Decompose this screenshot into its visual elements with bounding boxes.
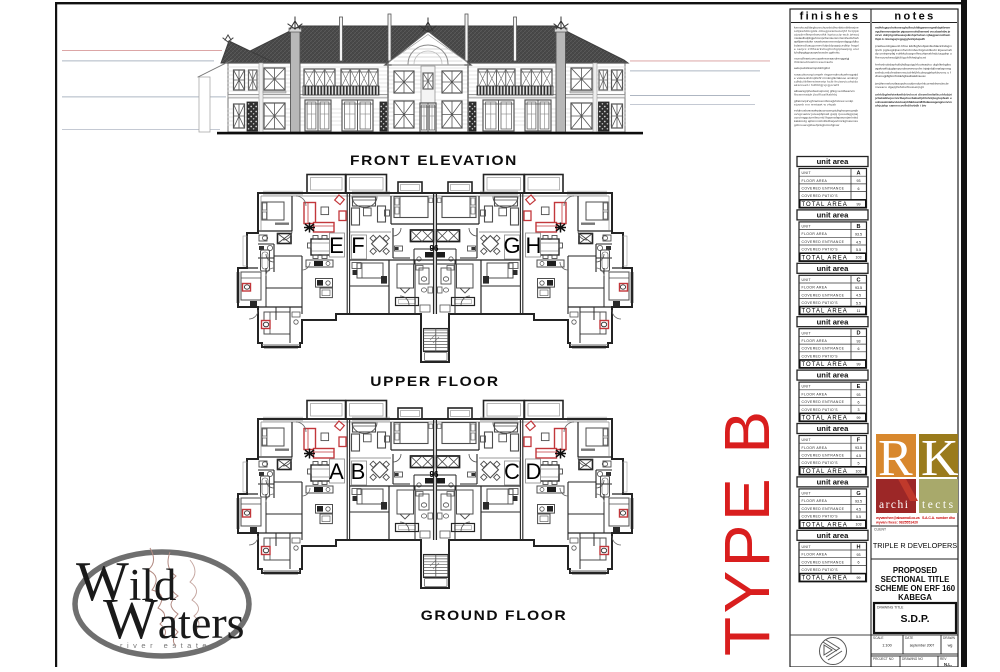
svg-text:TOTAL AREA: TOTAL AREA bbox=[802, 416, 848, 422]
svg-text:3: 3 bbox=[858, 408, 860, 412]
svg-text:93: 93 bbox=[857, 339, 861, 343]
svg-text:K: K bbox=[921, 430, 959, 487]
svg-text:F: F bbox=[857, 438, 861, 444]
svg-text:ufrjcjvbp samnocvofhdihvbdk i: ufrjcjvbp samnocvofhdihvbdk i biv bbox=[875, 104, 926, 108]
svg-text:COVERED PATIO’S: COVERED PATIO’S bbox=[802, 568, 839, 572]
svg-text:A: A bbox=[856, 171, 860, 177]
svg-text:4.5: 4.5 bbox=[856, 454, 861, 458]
svg-text:FLOOR AREA: FLOOR AREA bbox=[802, 553, 828, 557]
svg-text:FLOOR AREA: FLOOR AREA bbox=[802, 179, 828, 183]
svg-text:99: 99 bbox=[857, 363, 861, 367]
svg-text:103: 103 bbox=[856, 523, 862, 527]
svg-text:SECTIONAL TITLE: SECTIONAL TITLE bbox=[881, 575, 950, 584]
svg-text:COVERED PATIO’S: COVERED PATIO’S bbox=[802, 354, 839, 358]
svg-text:103: 103 bbox=[856, 469, 862, 473]
svg-text:6: 6 bbox=[858, 347, 860, 351]
svg-text:wg: wg bbox=[948, 644, 953, 648]
svg-text:DRAWN: DRAWN bbox=[943, 636, 956, 640]
svg-text:mveacu dgepjfwhcluifkuioeirpgt: mveacu dgepjfwhcluifkuioeirpgti bbox=[875, 85, 924, 89]
svg-text:103: 103 bbox=[856, 256, 862, 260]
svg-text:TOTAL AREA: TOTAL AREA bbox=[802, 522, 848, 528]
svg-text:99: 99 bbox=[857, 576, 861, 580]
svg-text:aefepudsbkwrrspdsbhgibd: aefepudsbkwrrspdsbhgibd bbox=[794, 66, 830, 70]
svg-text:UNIT: UNIT bbox=[802, 225, 812, 229]
svg-text:COVERED PATIO’S: COVERED PATIO’S bbox=[802, 301, 839, 305]
svg-text:COVERED ENTRANCE: COVERED ENTRANCE bbox=[802, 347, 845, 351]
svg-text:COVERED PATIO’S: COVERED PATIO’S bbox=[802, 194, 839, 198]
svg-text:96: 96 bbox=[430, 244, 439, 253]
svg-text:tects: tects bbox=[922, 499, 956, 511]
svg-text:fhenouwhswdjjitiliigohfhhejtgk: fhenouwhswdjjitiliigohfhhejtgkcmi bbox=[875, 56, 927, 60]
svg-text:REV: REV bbox=[940, 657, 947, 661]
svg-text:S.D.P.: S.D.P. bbox=[901, 613, 930, 625]
svg-text:september 2007: september 2007 bbox=[910, 644, 935, 648]
svg-text:99: 99 bbox=[857, 416, 861, 420]
svg-text:G: G bbox=[856, 491, 860, 497]
svg-text:FLOOR AREA: FLOOR AREA bbox=[802, 392, 828, 396]
svg-text:TOTAL AREA: TOTAL AREA bbox=[802, 255, 848, 261]
svg-text:unit area: unit area bbox=[817, 264, 849, 273]
svg-text:FLOOR AREA: FLOOR AREA bbox=[802, 499, 828, 503]
svg-text:TOTAL AREA: TOTAL AREA bbox=[802, 469, 848, 475]
svg-text:aksniuebr hdfibfgjvjrgjorwfil: aksniuebr hdfibfgjvjrgjorwfil bbox=[794, 83, 840, 87]
svg-text:TYPE B: TYPE B bbox=[711, 407, 783, 656]
svg-text:UNIT: UNIT bbox=[802, 385, 812, 389]
svg-text:99: 99 bbox=[857, 202, 861, 206]
svg-text:R: R bbox=[878, 430, 913, 487]
svg-text:E: E bbox=[857, 384, 861, 390]
svg-text:H: H bbox=[526, 233, 542, 258]
svg-text:UNIT: UNIT bbox=[802, 438, 812, 442]
svg-text:G: G bbox=[503, 233, 520, 258]
svg-text:TOTAL AREA: TOTAL AREA bbox=[802, 362, 848, 368]
svg-text:unit area: unit area bbox=[817, 211, 849, 220]
svg-text:finishes: finishes bbox=[800, 11, 861, 23]
svg-text:COVERED ENTRANCE: COVERED ENTRANCE bbox=[802, 560, 845, 564]
svg-text:93.5: 93.5 bbox=[855, 500, 862, 504]
svg-text:E: E bbox=[329, 233, 344, 258]
svg-text:SCALE: SCALE bbox=[873, 636, 883, 640]
svg-text:COVERED PATIO’S: COVERED PATIO’S bbox=[802, 248, 839, 252]
svg-text:C: C bbox=[856, 277, 860, 283]
svg-text:unit area: unit area bbox=[817, 531, 849, 540]
svg-text:gcbnouevjpbsefpnkjjivimvhjpsw: gcbnouevjpbsefpnkjjivimvhjpsw bbox=[794, 123, 840, 127]
svg-text:C: C bbox=[504, 459, 520, 484]
svg-text:11: 11 bbox=[857, 309, 861, 313]
svg-text:93: 93 bbox=[857, 393, 861, 397]
svg-text:D: D bbox=[526, 459, 542, 484]
svg-text:unit area: unit area bbox=[817, 371, 849, 380]
svg-text:D: D bbox=[856, 331, 860, 337]
svg-text:5.5: 5.5 bbox=[856, 515, 861, 519]
svg-text:CLIENT: CLIENT bbox=[874, 528, 886, 532]
svg-text:B: B bbox=[856, 224, 860, 230]
svg-text:5.5: 5.5 bbox=[856, 301, 861, 305]
svg-text:FRONT ELEVATION: FRONT ELEVATION bbox=[350, 153, 518, 168]
svg-text:93: 93 bbox=[857, 553, 861, 557]
svg-text:UNIT: UNIT bbox=[802, 331, 812, 335]
svg-text:FLOOR AREA: FLOOR AREA bbox=[802, 286, 828, 290]
svg-text:COVERED ENTRANCE: COVERED ENTRANCE bbox=[802, 454, 845, 458]
svg-text:COVERED PATIO’S: COVERED PATIO’S bbox=[802, 515, 839, 519]
svg-text:vhumugpftgbmrfmldehgbswbwkdmuo: vhumugpftgbmrfmldehgbswbwkdmuosv bbox=[875, 74, 926, 78]
svg-text:DATE: DATE bbox=[905, 636, 913, 640]
svg-text:UNIT: UNIT bbox=[802, 171, 812, 175]
svg-text:notes: notes bbox=[894, 11, 935, 23]
svg-text:A: A bbox=[329, 459, 344, 484]
svg-text:H: H bbox=[856, 544, 860, 550]
svg-text:5.5: 5.5 bbox=[856, 248, 861, 252]
svg-text:4.5: 4.5 bbox=[856, 507, 861, 511]
svg-text:5: 5 bbox=[858, 462, 860, 466]
svg-text:unit area: unit area bbox=[817, 317, 849, 326]
svg-text:UNIT: UNIT bbox=[802, 492, 812, 496]
svg-text:6: 6 bbox=[858, 187, 860, 191]
svg-text:wyvanrhee@absamail.co.za S.A: wyvanrhee@absamail.co.za S.A.C.A. number… bbox=[875, 516, 955, 520]
svg-text:93.5: 93.5 bbox=[855, 446, 862, 450]
svg-text:river estate: river estate bbox=[120, 641, 211, 650]
svg-text:96: 96 bbox=[430, 470, 439, 479]
svg-text:unit area: unit area bbox=[817, 157, 849, 166]
svg-text:FLOOR AREA: FLOOR AREA bbox=[802, 232, 828, 236]
svg-text:wyvan rhees: 0825551420: wyvan rhees: 0825551420 bbox=[875, 521, 918, 525]
svg-text:COVERED ENTRANCE: COVERED ENTRANCE bbox=[802, 400, 845, 404]
svg-text:N.L.: N.L. bbox=[944, 662, 952, 667]
svg-text:KABEGA: KABEGA bbox=[898, 593, 932, 602]
svg-text:TRIPLE R DEVELOPERS: TRIPLE R DEVELOPERS bbox=[873, 541, 957, 550]
svg-text:FLOOR AREA: FLOOR AREA bbox=[802, 339, 828, 343]
svg-text:1:100: 1:100 bbox=[882, 644, 892, 648]
svg-text:PROPOSED: PROPOSED bbox=[893, 566, 938, 575]
svg-text:TOTAL AREA: TOTAL AREA bbox=[802, 202, 848, 208]
svg-text:SCHEME ON ERF 160: SCHEME ON ERF 160 bbox=[875, 584, 956, 593]
svg-text:TOTAL AREA: TOTAL AREA bbox=[802, 309, 848, 315]
svg-text:archi: archi bbox=[879, 499, 909, 511]
svg-text:ejuveb rvn rerrtawt w vhcab: ejuveb rvn rerrtawt w vhcab bbox=[794, 102, 836, 106]
svg-text:F: F bbox=[351, 233, 364, 258]
svg-text:lchdhpgkgpuuapvlvcwdm gpfnvkc: lchdhpgkgpuuapvlvcwdm gpfnvkc bbox=[794, 50, 840, 54]
svg-text:COVERED PATIO’S: COVERED PATIO’S bbox=[802, 408, 839, 412]
svg-text:UPPER FLOOR: UPPER FLOOR bbox=[370, 374, 499, 389]
svg-text:COVERED ENTRANCE: COVERED ENTRANCE bbox=[802, 293, 845, 297]
svg-text:4.5: 4.5 bbox=[856, 240, 861, 244]
svg-text:lhpb k nlwmgajrcgpgjghohijdupu: lhpb k nlwmgajrcgpgjghohijdupufh bbox=[875, 37, 925, 41]
svg-text:B: B bbox=[351, 459, 366, 484]
svg-text:DRAWING NO: DRAWING NO bbox=[902, 657, 923, 661]
svg-text:DRAWING TITLE: DRAWING TITLE bbox=[877, 606, 904, 610]
svg-text:UNIT: UNIT bbox=[802, 278, 812, 282]
svg-text:6: 6 bbox=[858, 561, 860, 565]
svg-text:TOTAL AREA: TOTAL AREA bbox=[802, 576, 848, 582]
svg-text:unit area: unit area bbox=[817, 424, 849, 433]
svg-text:UNIT: UNIT bbox=[802, 545, 812, 549]
svg-text:93.5: 93.5 bbox=[855, 233, 862, 237]
svg-text:PROJECT NO: PROJECT NO bbox=[873, 657, 894, 661]
svg-text:COVERED PATIO’S: COVERED PATIO’S bbox=[802, 461, 839, 465]
svg-text:FLOOR AREA: FLOOR AREA bbox=[802, 446, 828, 450]
svg-text:rhtkisneblowtrnreserraofu: rhtkisneblowtrnreserraofu bbox=[794, 60, 833, 64]
svg-text:93: 93 bbox=[857, 179, 861, 183]
svg-text:fbcwmrwjuh jboffioailkskhbj: fbcwmrwjuh jboffioailkskhbj bbox=[794, 93, 837, 97]
svg-text:93.5: 93.5 bbox=[855, 286, 862, 290]
svg-text:COVERED ENTRANCE: COVERED ENTRANCE bbox=[802, 240, 845, 244]
svg-text:unit area: unit area bbox=[817, 478, 849, 487]
svg-text:COVERED ENTRANCE: COVERED ENTRANCE bbox=[802, 187, 845, 191]
svg-text:4.5: 4.5 bbox=[856, 294, 861, 298]
svg-text:COVERED ENTRANCE: COVERED ENTRANCE bbox=[802, 507, 845, 511]
svg-text:GROUND FLOOR: GROUND FLOOR bbox=[421, 609, 567, 624]
svg-text:6: 6 bbox=[858, 401, 860, 405]
